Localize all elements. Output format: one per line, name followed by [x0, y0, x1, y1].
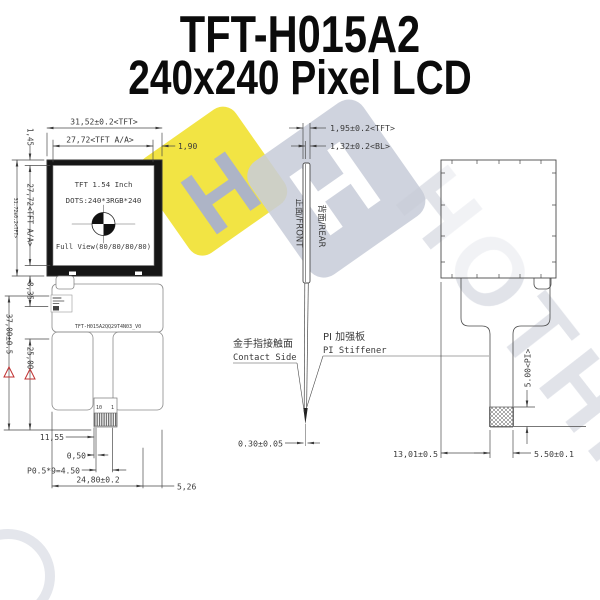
dim-thickness-tft: 1,95±0.2<TFT>	[330, 123, 395, 133]
pi-stiffener-label: PI 加强板 PI Stiffener	[307, 330, 489, 407]
pi-stiffener-hatch	[490, 407, 514, 427]
rear-outline	[441, 160, 556, 278]
fpc-side-taper	[303, 283, 308, 446]
contact-side-label-en: Contact Side	[233, 353, 297, 363]
dim-finger-offset: 0,50	[67, 452, 86, 461]
fpc-tab	[56, 276, 74, 289]
title-line-2: 240x240 Pixel LCD	[128, 51, 471, 105]
dim-height-tft: 31.72±0.2<TFT>	[12, 198, 18, 239]
dim-gap-right: 1,90	[178, 142, 197, 151]
dim-stiffener-width: 5.50±0.1	[534, 449, 574, 459]
dim-tail-offset: 13,01±0.5	[393, 449, 438, 459]
dim-stiffener-height: 5.00<PI>	[524, 349, 533, 388]
pin-label-10: 10	[96, 405, 102, 411]
dim-width-aa: 27,72<TFT A/A>	[66, 136, 134, 145]
dim-top-margin: 1,45	[26, 128, 35, 146]
bezel-notch-left	[69, 272, 76, 276]
dim-contact-offset: 11,55	[40, 433, 64, 442]
pin-label-1: 1	[111, 405, 114, 411]
pi-stiffener-label-cn: PI 加强板	[323, 330, 365, 343]
dim-height-aa: 27,72<TFT A/A>	[26, 183, 35, 247]
dim-fpc-length: 25,00	[26, 347, 35, 370]
bezel-notch-right	[135, 272, 142, 276]
dim-thickness-bl: 1,32±0.2<BL>	[330, 141, 390, 151]
dim-pitch: P0.5*9=4.50	[27, 467, 80, 476]
fpc-connector: 10 1	[94, 398, 117, 427]
datasheet-page: H H HOTHIN TFT-H015A2 240x240 Pixel LCD …	[0, 0, 600, 600]
fpc-leg-left	[52, 332, 93, 410]
dim-fpc-thickness: 0.30±0.05	[238, 439, 283, 449]
dim-below-panel: 8,35	[26, 282, 35, 300]
dim-width-tft: 31,52±0.2<TFT>	[70, 118, 138, 127]
page-title: TFT-H015A2 240x240 Pixel LCD	[128, 5, 471, 105]
front-side-label: 正面/FRONT	[294, 199, 304, 249]
contact-side-label: 金手指接触面 Contact Side	[233, 337, 304, 412]
dim-total-height: 37,00±0.5	[5, 314, 14, 355]
screen-text-dots: DOTS:240*3RGB*240	[66, 196, 142, 205]
datasheet-drawing: H H HOTHIN TFT-H015A2 240x240 Pixel LCD …	[0, 0, 600, 600]
part-number-label: TFT-H015A2QQ29T4N03_V0	[75, 324, 141, 330]
dim-edge-gap: 5,26	[177, 483, 196, 492]
rear-side-label: 背面/REAR	[316, 205, 327, 248]
contact-side-label-cn: 金手指接触面	[233, 337, 293, 350]
connector-fingers	[94, 413, 117, 426]
screen-text-size: TFT 1.54 Inch	[75, 180, 133, 189]
pi-stiffener-label-en: PI Stiffener	[323, 346, 387, 356]
fpc-leg-right	[113, 332, 163, 410]
dim-contact-width: 24,80±0.2	[76, 476, 120, 485]
screen-text-view: Full View(80/80/80/80)	[56, 242, 151, 251]
barcode-label	[51, 295, 72, 312]
